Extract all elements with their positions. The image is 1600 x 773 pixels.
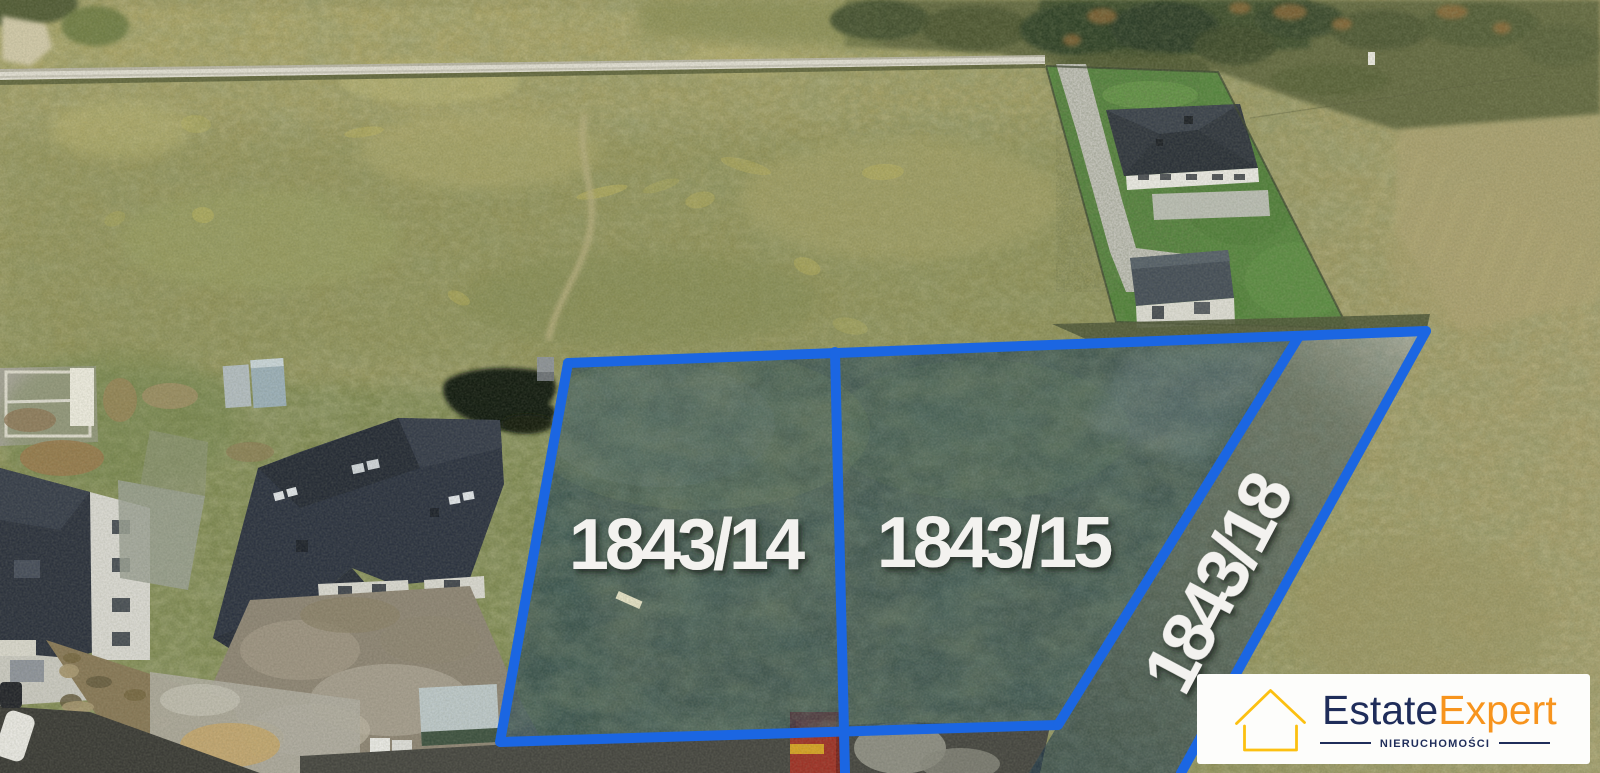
svg-text:1843/14: 1843/14	[569, 505, 805, 585]
svg-text:NIERUCHOMOŚCI: NIERUCHOMOŚCI	[1380, 737, 1490, 750]
svg-text:EstateExpert: EstateExpert	[1322, 687, 1557, 733]
svg-text:1843/15: 1843/15	[877, 503, 1112, 583]
